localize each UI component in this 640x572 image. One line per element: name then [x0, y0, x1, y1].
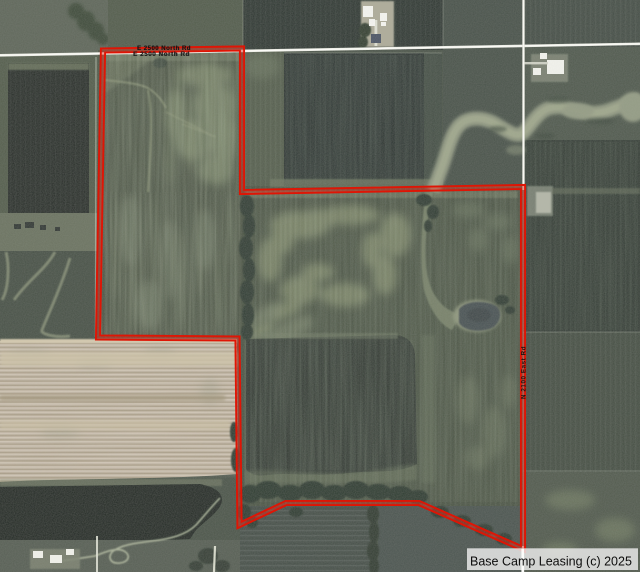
svg-text:N 2100 East Rd: N 2100 East Rd [520, 346, 527, 399]
svg-text:Base Camp Leasing (c) 2025: Base Camp Leasing (c) 2025 [470, 554, 632, 568]
svg-text:E 2500 North Rd: E 2500 North Rd [134, 51, 191, 58]
